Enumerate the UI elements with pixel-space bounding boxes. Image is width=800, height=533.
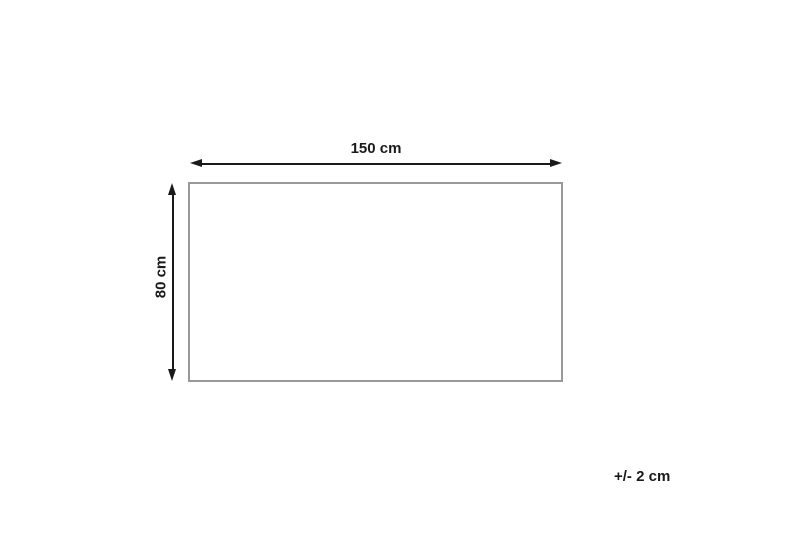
diagram-canvas: 150 cm 80 cm +/- 2 cm: [0, 0, 800, 533]
width-dimension-label: 150 cm: [190, 141, 562, 156]
arrowhead-right-icon: [550, 159, 562, 167]
height-dimension-label: 80 cm: [154, 256, 169, 299]
height-arrow-line: [172, 190, 174, 374]
arrowhead-down-icon: [168, 369, 176, 381]
width-arrow-line: [197, 163, 555, 165]
width-dimension-arrow: [190, 159, 562, 168]
tolerance-note: +/- 2 cm: [614, 469, 670, 484]
product-outline-rect: [188, 182, 563, 382]
